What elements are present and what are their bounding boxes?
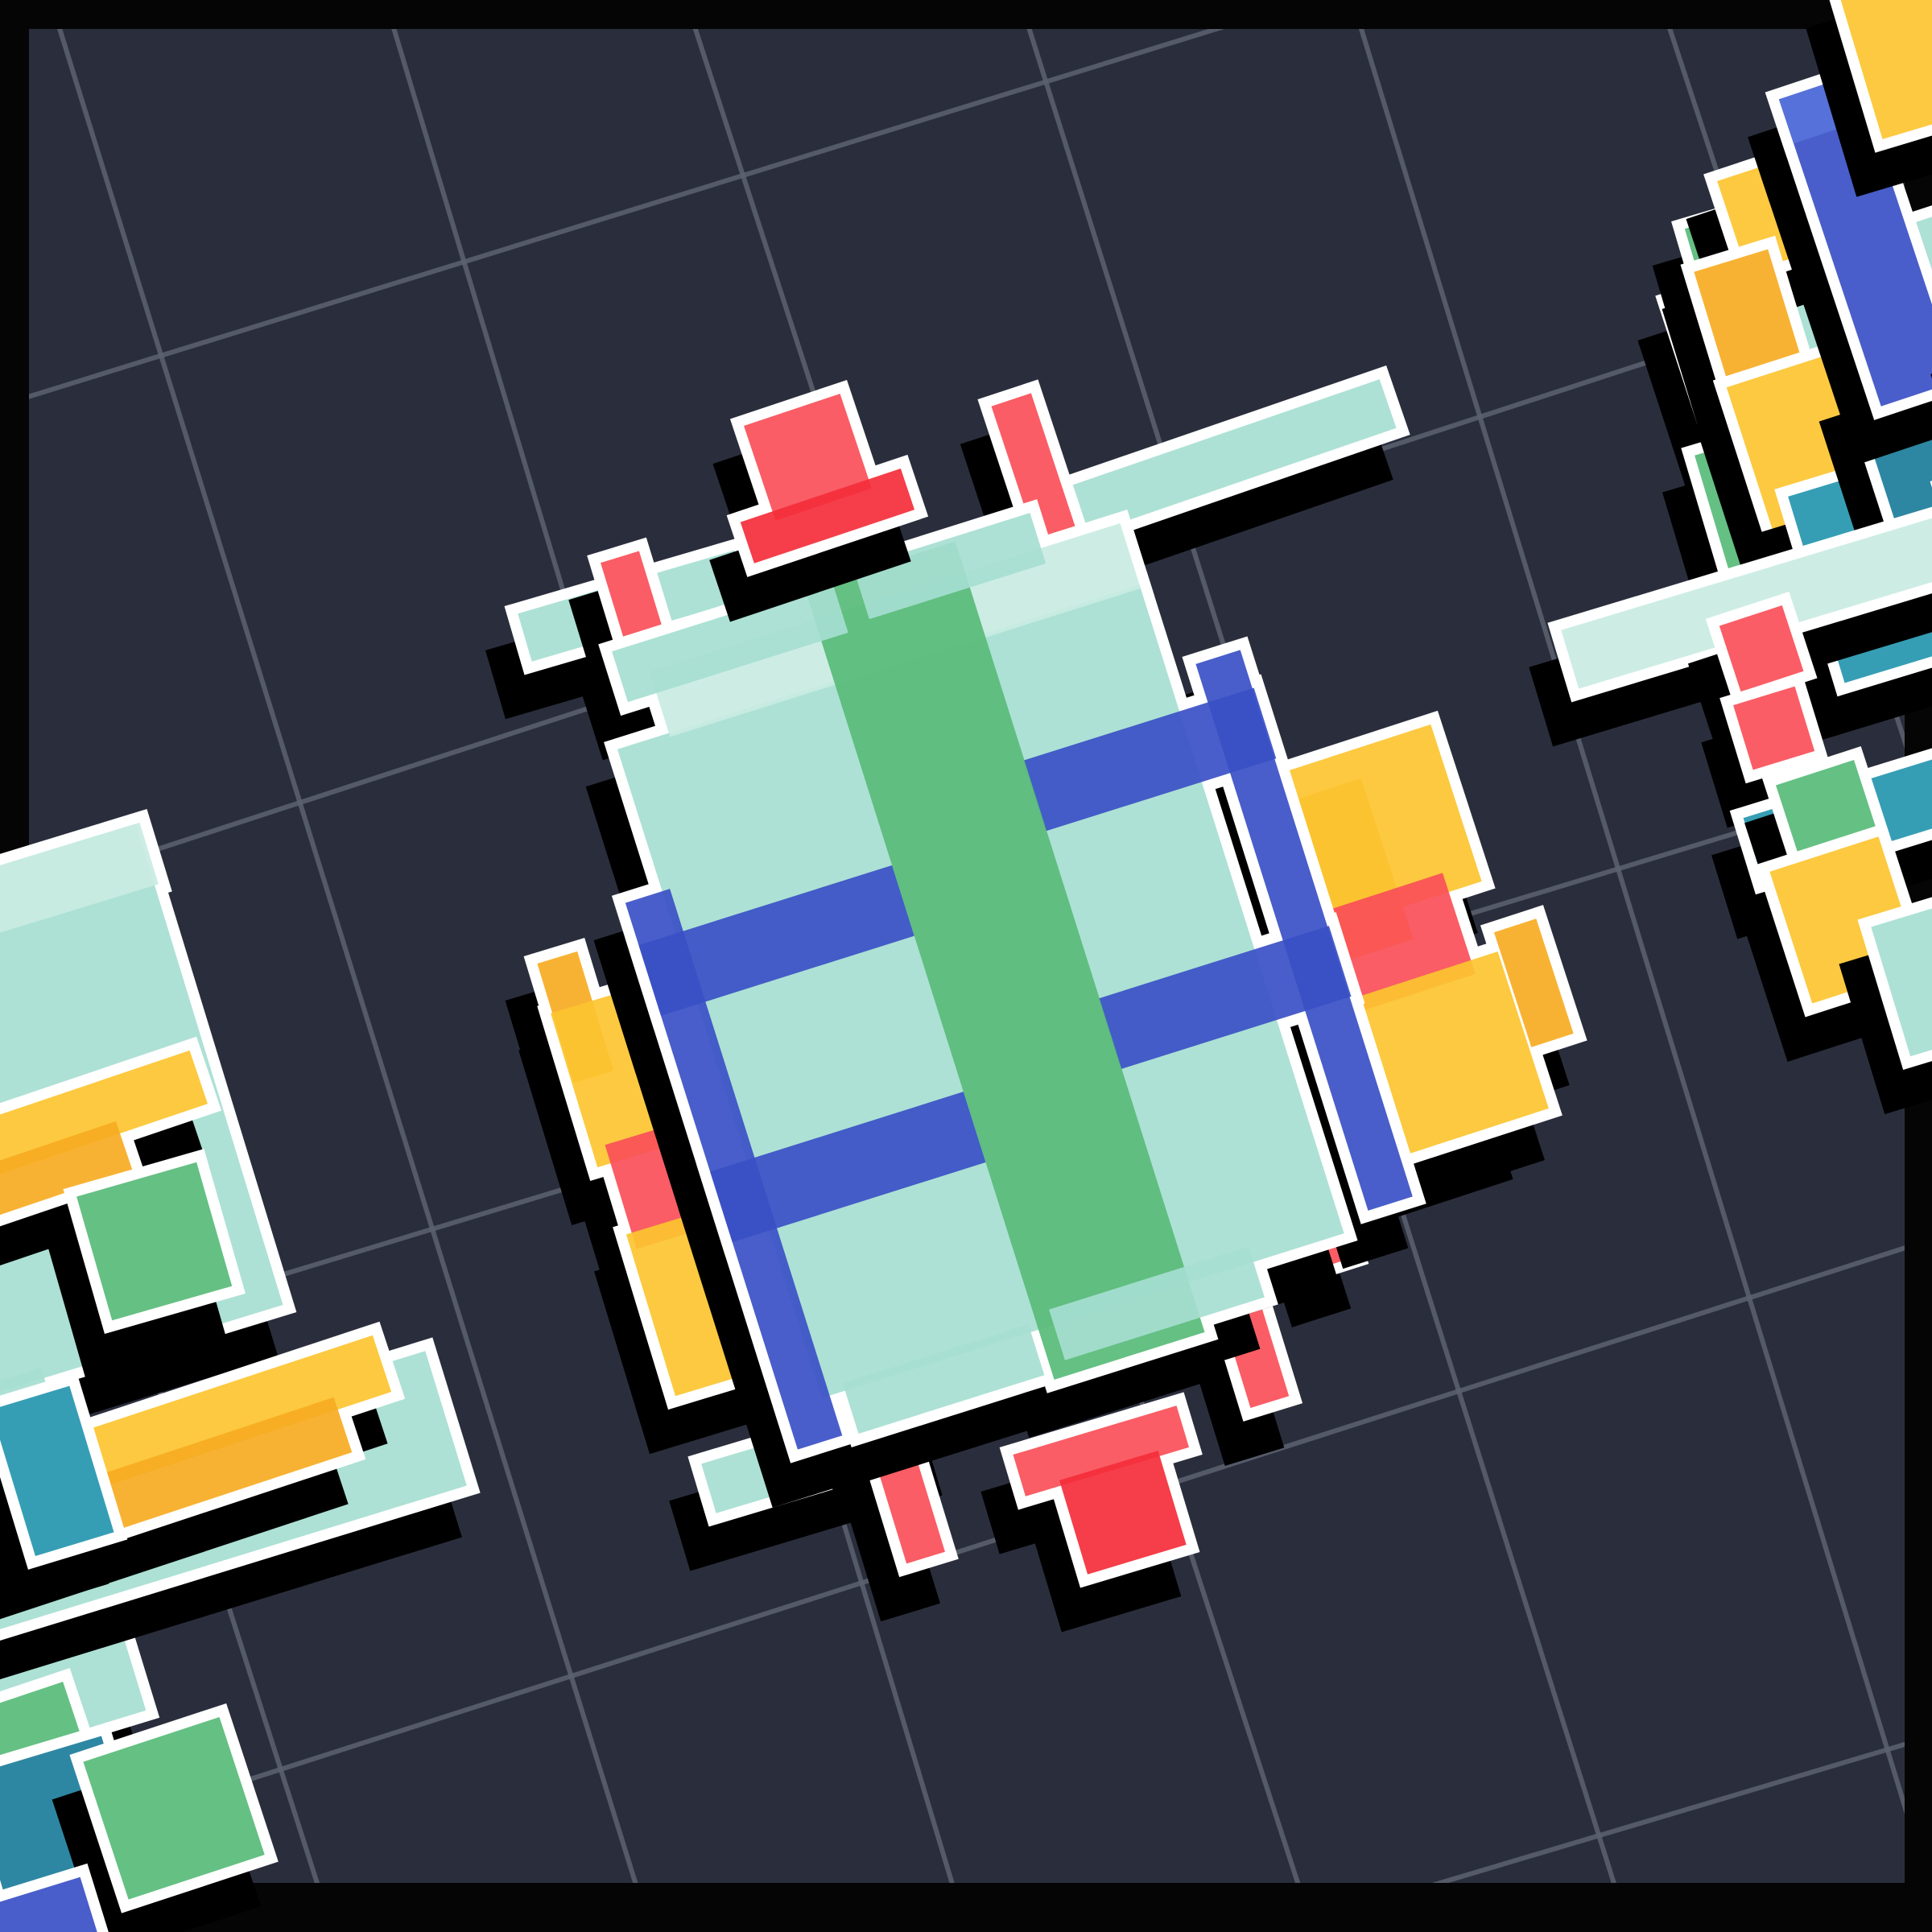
game-viewport — [0, 0, 1932, 1932]
left-totem-green-square — [47, 1162, 242, 1364]
scene-canvas — [0, 0, 1932, 1932]
